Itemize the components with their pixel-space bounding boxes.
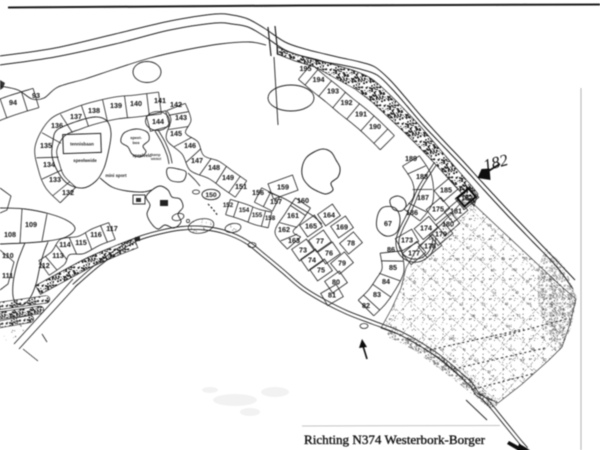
- svg-text:82: 82: [362, 301, 370, 310]
- svg-text:32: 32: [500, 234, 504, 238]
- svg-text:bos: bos: [132, 140, 140, 145]
- svg-text:2: 2: [443, 224, 445, 228]
- svg-text:22: 22: [536, 268, 540, 272]
- svg-text:5: 5: [554, 347, 556, 351]
- svg-text:149: 149: [222, 173, 234, 182]
- svg-text:192: 192: [341, 98, 353, 107]
- svg-text:86: 86: [387, 245, 395, 254]
- svg-text:191: 191: [355, 110, 367, 119]
- svg-text:57: 57: [484, 325, 488, 329]
- svg-text:74: 74: [308, 255, 316, 264]
- svg-text:135: 135: [40, 141, 52, 150]
- svg-text:194: 194: [313, 75, 325, 84]
- svg-text:speelveld: speelveld: [132, 153, 152, 158]
- svg-text:55: 55: [524, 257, 528, 261]
- svg-text:175: 175: [432, 204, 444, 213]
- svg-text:165: 165: [305, 221, 317, 230]
- svg-text:152: 152: [223, 202, 234, 209]
- svg-text:142: 142: [170, 100, 182, 109]
- svg-text:18: 18: [393, 326, 397, 330]
- svg-text:79: 79: [338, 258, 346, 267]
- svg-text:50: 50: [463, 201, 467, 205]
- svg-text:173: 173: [401, 235, 413, 244]
- svg-text:150: 150: [205, 192, 217, 199]
- svg-text:52: 52: [508, 347, 512, 351]
- svg-text:159: 159: [277, 183, 289, 192]
- svg-text:53: 53: [520, 358, 524, 362]
- svg-text:Richting N374 Westerbork-Borge: Richting N374 Westerbork-Borger: [304, 432, 486, 447]
- svg-text:38: 38: [488, 223, 492, 227]
- svg-text:25: 25: [562, 313, 566, 317]
- svg-text:54: 54: [501, 257, 505, 261]
- svg-text:61: 61: [491, 268, 495, 272]
- svg-text:161: 161: [287, 211, 299, 220]
- svg-text:158: 158: [265, 215, 276, 222]
- svg-text:169: 169: [336, 222, 348, 231]
- svg-text:84: 84: [382, 277, 390, 286]
- svg-text:11: 11: [435, 280, 439, 284]
- svg-text:160: 160: [297, 196, 309, 205]
- svg-text:35: 35: [451, 337, 455, 341]
- svg-text:10: 10: [475, 359, 479, 363]
- svg-text:155: 155: [252, 212, 263, 219]
- svg-text:190: 190: [369, 122, 381, 131]
- svg-text:44: 44: [527, 302, 531, 306]
- svg-text:113: 113: [52, 251, 64, 260]
- svg-text:51: 51: [423, 269, 427, 273]
- svg-text:3: 3: [403, 292, 405, 296]
- svg-text:136: 136: [51, 121, 63, 130]
- svg-text:46: 46: [531, 347, 535, 351]
- svg-text:138: 138: [88, 106, 100, 115]
- svg-text:50: 50: [494, 314, 498, 318]
- svg-text:7: 7: [504, 280, 506, 284]
- svg-text:144: 144: [152, 117, 164, 126]
- svg-text:28: 28: [472, 314, 476, 318]
- svg-text:195: 195: [300, 64, 312, 73]
- svg-text:77: 77: [316, 236, 324, 245]
- svg-text:5: 5: [427, 314, 429, 318]
- svg-text:151: 151: [235, 182, 247, 191]
- svg-text:53: 53: [458, 280, 462, 284]
- svg-text:43: 43: [505, 302, 509, 306]
- svg-text:156: 156: [252, 188, 264, 197]
- svg-text:44: 44: [433, 258, 437, 262]
- svg-text:60: 60: [447, 292, 451, 296]
- svg-text:85: 85: [389, 263, 397, 272]
- svg-text:148: 148: [208, 163, 220, 172]
- svg-text:14: 14: [493, 291, 497, 295]
- svg-text:81: 81: [328, 290, 336, 299]
- svg-text:4: 4: [447, 269, 449, 273]
- svg-text:3: 3: [497, 336, 499, 340]
- svg-text:2: 2: [474, 336, 476, 340]
- svg-text:94: 94: [9, 98, 17, 107]
- svg-text:141: 141: [154, 96, 166, 105]
- svg-text:174: 174: [420, 223, 432, 232]
- svg-text:32: 32: [552, 324, 556, 328]
- svg-text:57: 57: [453, 212, 457, 216]
- svg-text:52: 52: [467, 246, 471, 250]
- svg-text:tennisbaan: tennisbaan: [70, 142, 94, 147]
- svg-text:146: 146: [184, 141, 196, 150]
- svg-text:mini sport: mini sport: [105, 173, 127, 178]
- svg-text:116: 116: [90, 230, 102, 239]
- svg-text:76: 76: [325, 248, 333, 257]
- svg-text:13: 13: [460, 303, 464, 307]
- svg-text:139: 139: [110, 101, 122, 110]
- svg-text:154: 154: [239, 207, 250, 214]
- svg-text:58: 58: [413, 281, 417, 285]
- svg-text:6: 6: [481, 280, 483, 284]
- svg-text:51: 51: [517, 313, 521, 317]
- svg-text:45: 45: [477, 235, 481, 239]
- svg-text:17: 17: [465, 370, 469, 374]
- svg-text:108: 108: [4, 230, 16, 239]
- svg-text:140: 140: [130, 99, 142, 108]
- svg-text:114: 114: [59, 240, 71, 249]
- svg-text:37: 37: [538, 290, 542, 294]
- svg-text:145: 145: [170, 129, 182, 138]
- svg-text:21: 21: [482, 302, 486, 306]
- svg-text:110: 110: [2, 251, 14, 260]
- svg-text:115: 115: [75, 238, 87, 247]
- svg-text:4: 4: [478, 382, 480, 386]
- svg-text:73: 73: [299, 245, 307, 254]
- svg-text:117: 117: [106, 224, 118, 233]
- svg-text:36: 36: [515, 291, 519, 295]
- svg-text:109: 109: [25, 220, 37, 229]
- svg-text:58: 58: [506, 325, 510, 329]
- svg-text:39: 39: [489, 246, 493, 250]
- svg-text:163: 163: [288, 236, 300, 245]
- svg-text:12: 12: [543, 358, 547, 362]
- svg-text:39: 39: [541, 336, 545, 340]
- svg-text:78: 78: [347, 238, 355, 247]
- svg-text:59: 59: [487, 370, 491, 374]
- svg-text:147: 147: [191, 156, 203, 165]
- svg-text:80: 80: [332, 277, 340, 286]
- svg-text:164: 164: [323, 210, 335, 219]
- svg-text:83: 83: [373, 290, 381, 299]
- svg-text:16: 16: [452, 359, 456, 363]
- svg-text:112: 112: [38, 261, 50, 270]
- svg-text:162: 162: [278, 225, 290, 234]
- svg-text:185: 185: [440, 185, 452, 194]
- svg-text:30: 30: [465, 224, 469, 228]
- svg-text:143: 143: [175, 113, 187, 122]
- svg-text:winkel: winkel: [150, 157, 161, 161]
- svg-text:9: 9: [422, 247, 424, 251]
- svg-text:133: 133: [49, 175, 61, 184]
- svg-text:9: 9: [464, 348, 466, 352]
- svg-text:46: 46: [479, 257, 483, 261]
- svg-text:75: 75: [317, 265, 325, 274]
- svg-text:93: 93: [32, 91, 40, 100]
- svg-text:132: 132: [62, 188, 74, 197]
- svg-text:45: 45: [550, 302, 554, 306]
- svg-text:29: 29: [526, 279, 530, 283]
- svg-text:137: 137: [70, 112, 82, 121]
- svg-text:speelweide: speelweide: [73, 158, 97, 163]
- svg-text:42: 42: [440, 348, 444, 352]
- svg-text:193: 193: [327, 87, 339, 96]
- svg-text:67: 67: [384, 219, 392, 228]
- svg-text:59: 59: [456, 258, 460, 262]
- svg-text:62: 62: [514, 268, 518, 272]
- svg-text:189: 189: [405, 154, 417, 163]
- svg-text:37: 37: [454, 235, 458, 239]
- svg-text:30: 30: [548, 279, 552, 283]
